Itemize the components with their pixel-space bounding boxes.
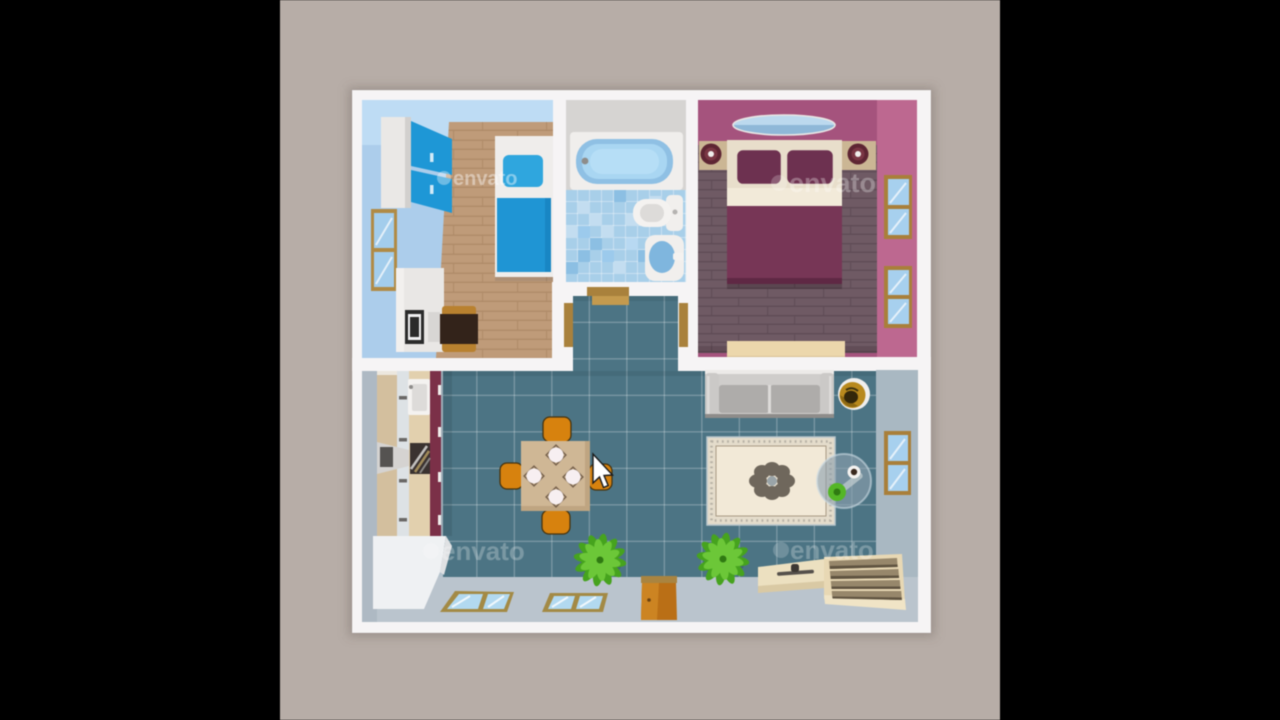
svg-text:envato: envato: [790, 535, 874, 565]
svg-text:envato: envato: [789, 168, 876, 198]
svg-text:envato: envato: [453, 168, 517, 190]
svg-text:envato: envato: [441, 536, 525, 566]
